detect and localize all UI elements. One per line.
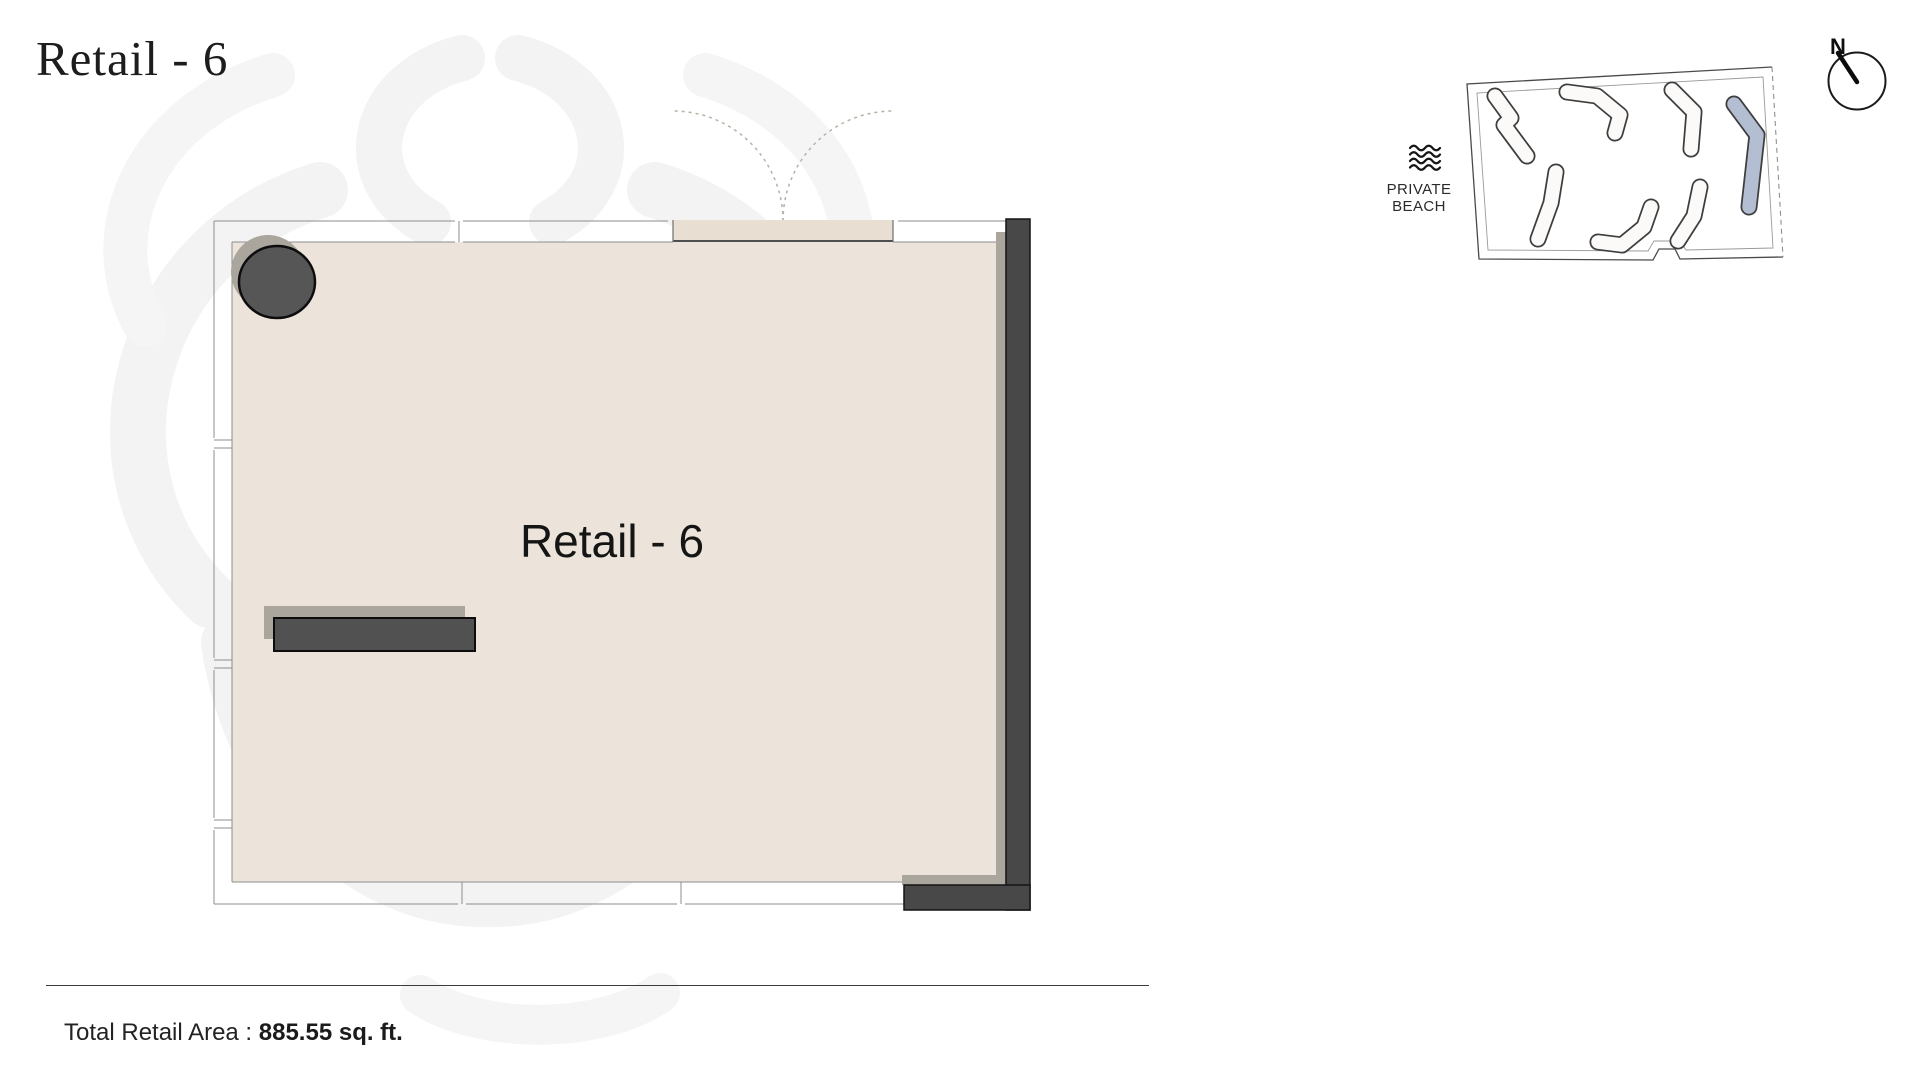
room-label: Retail - 6: [462, 514, 762, 568]
waves-icon: [1410, 146, 1440, 170]
total-area-value: 885.55 sq. ft.: [259, 1019, 403, 1046]
private-beach-line1: PRIVATE: [1377, 182, 1461, 199]
footer-divider: [46, 985, 1149, 986]
entrance-threshold: [673, 220, 893, 242]
display-counter: [274, 618, 475, 651]
total-area-label: Total Retail Area :: [64, 1019, 259, 1046]
page-graphics: [0, 0, 1920, 1080]
compass-icon: [1829, 53, 1886, 110]
bottom-right-wall: [904, 885, 1030, 910]
right-wall: [1006, 219, 1030, 910]
page-title: Retail - 6: [36, 30, 228, 87]
floor-plan: [214, 111, 1030, 910]
wall-shadow: [996, 232, 1006, 884]
private-beach-label: PRIVATE BEACH: [1377, 182, 1461, 215]
brochure-page: Retail - 6 Retail - 6 PRIVATE BEACH N To…: [0, 0, 1920, 1080]
column: [239, 246, 315, 318]
site-map: [1410, 67, 1783, 260]
compass-north-label: N: [1830, 34, 1846, 60]
wall-shadow: [902, 875, 1006, 885]
total-area-text: Total Retail Area : 885.55 sq. ft.: [64, 1019, 403, 1047]
private-beach-line2: BEACH: [1377, 199, 1461, 216]
